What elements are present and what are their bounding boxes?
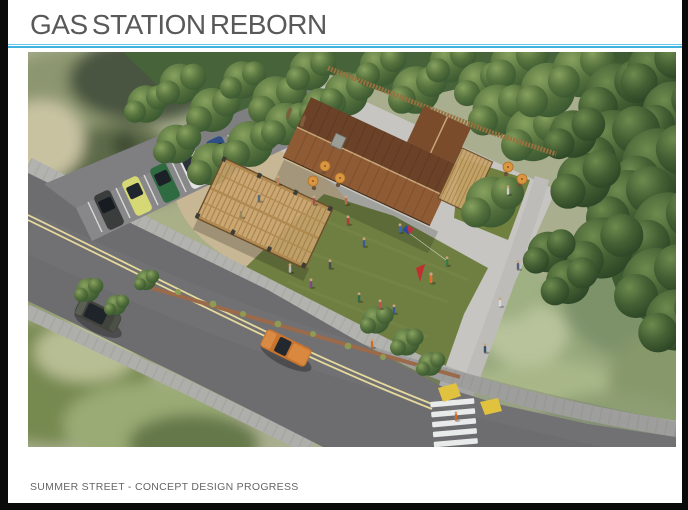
frame-bar-bottom: [0, 503, 688, 510]
slide-title: GAS STATION REBORN: [30, 9, 327, 41]
concept-rendering: [28, 52, 676, 447]
title-accent-rule: [8, 44, 682, 48]
frame-bar-left: [0, 0, 8, 510]
slide-footer: SUMMER STREET - CONCEPT DESIGN PROGRESS: [30, 481, 299, 493]
slide: GAS STATION REBORN: [8, 0, 682, 503]
frame-bar-right: [682, 0, 688, 510]
slide-stage: GAS STATION REBORN: [0, 0, 688, 510]
concept-rendering-image: [28, 52, 676, 447]
